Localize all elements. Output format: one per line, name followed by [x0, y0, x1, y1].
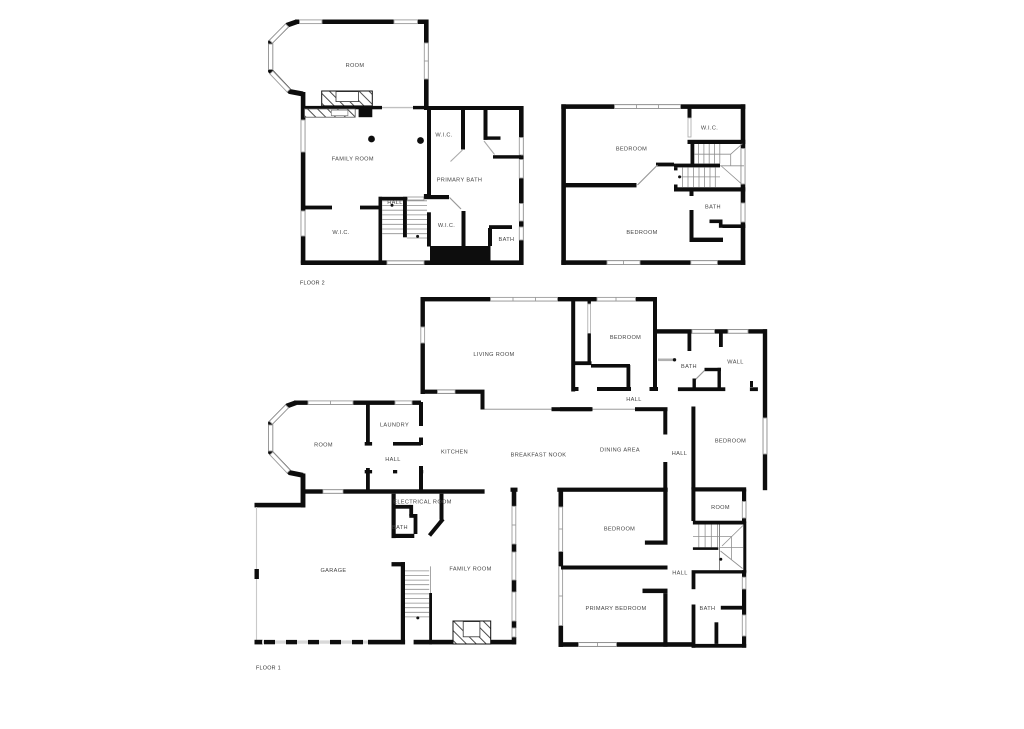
svg-text:LIVING ROOM: LIVING ROOM — [473, 352, 514, 358]
svg-text:W.I.C.: W.I.C. — [701, 126, 718, 132]
svg-text:FAMILY ROOM: FAMILY ROOM — [332, 157, 374, 163]
svg-text:BEDROOM: BEDROOM — [610, 335, 641, 341]
svg-text:WALL: WALL — [727, 360, 743, 366]
svg-text:HALL: HALL — [672, 571, 687, 577]
svg-text:BATH: BATH — [499, 237, 515, 243]
svg-text:ELECTRICAL ROOM: ELECTRICAL ROOM — [393, 500, 452, 506]
svg-text:BEDROOM: BEDROOM — [715, 439, 746, 445]
svg-text:FAMILY ROOM: FAMILY ROOM — [449, 567, 491, 573]
svg-text:FLOOR 2: FLOOR 2 — [300, 280, 325, 286]
svg-text:PRIMARY BATH: PRIMARY BATH — [437, 178, 483, 184]
svg-text:DINING AREA: DINING AREA — [600, 448, 640, 454]
svg-text:LAUNDRY: LAUNDRY — [380, 423, 409, 429]
svg-text:BEDROOM: BEDROOM — [616, 146, 647, 152]
svg-text:PRIMARY BEDROOM: PRIMARY BEDROOM — [586, 606, 647, 612]
svg-text:FLOOR 1: FLOOR 1 — [256, 666, 281, 672]
svg-text:HALL: HALL — [385, 457, 400, 463]
svg-text:ROOM: ROOM — [314, 443, 333, 449]
svg-text:BATH: BATH — [700, 606, 716, 612]
svg-text:ROOM: ROOM — [346, 63, 365, 69]
svg-text:HALL: HALL — [672, 451, 687, 457]
svg-text:W.I.C.: W.I.C. — [332, 230, 349, 236]
svg-text:BEDROOM: BEDROOM — [626, 230, 657, 236]
svg-text:BATH: BATH — [392, 525, 408, 531]
svg-text:HALL: HALL — [387, 200, 402, 206]
svg-text:HALL: HALL — [626, 397, 641, 403]
svg-text:BREAKFAST NOOK: BREAKFAST NOOK — [511, 453, 567, 459]
svg-text:BEDROOM: BEDROOM — [604, 527, 635, 533]
svg-text:W.I.C.: W.I.C. — [435, 132, 452, 138]
svg-text:BATH: BATH — [705, 205, 721, 211]
svg-text:KITCHEN: KITCHEN — [441, 450, 468, 456]
svg-text:ROOM: ROOM — [711, 505, 730, 511]
svg-text:W.I.C.: W.I.C. — [438, 223, 455, 229]
svg-text:GARAGE: GARAGE — [320, 568, 346, 574]
svg-text:BATH: BATH — [681, 364, 697, 370]
